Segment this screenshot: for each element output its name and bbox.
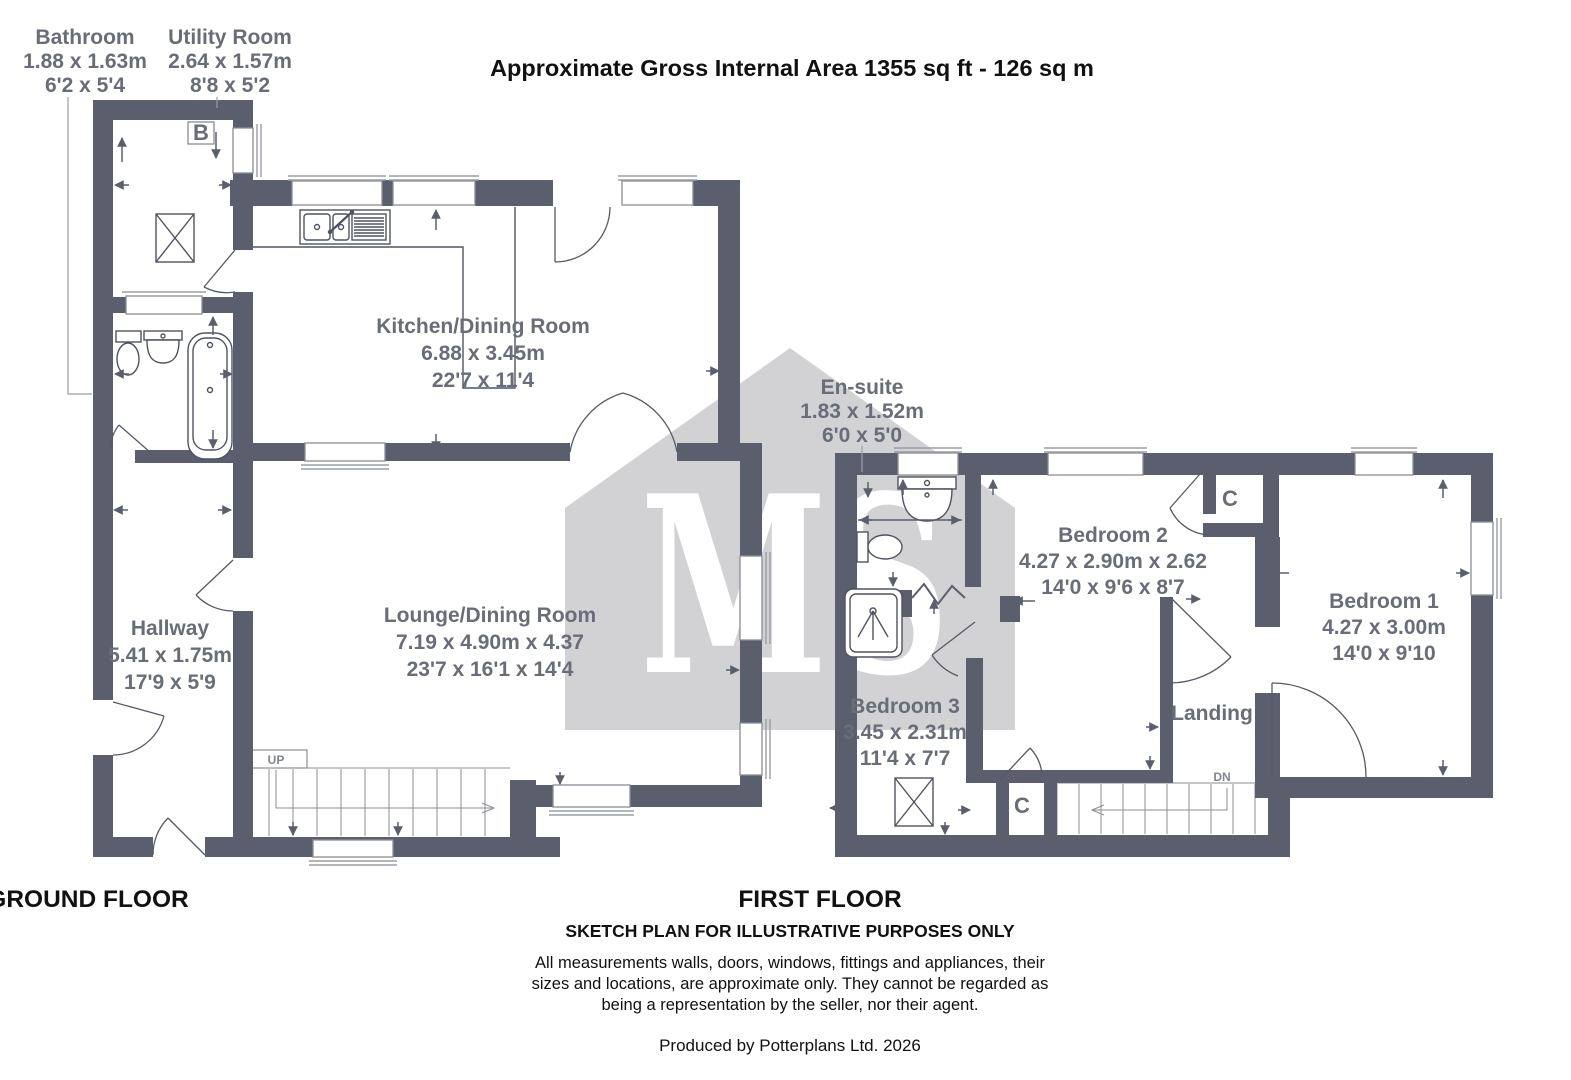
stairs-down-label: DN (1213, 770, 1230, 784)
room-label-bedroom1: Bedroom 1 4.27 x 3.00m 14'0 x 9'10 (1322, 590, 1446, 665)
landing-label: Landing (1171, 702, 1253, 725)
ground-floor-label: GROUND FLOOR (0, 886, 189, 913)
room-label-bedroom2: Bedroom 2 4.27 x 2.90m x 2.62 14'0 x 9'6… (1019, 524, 1207, 599)
shower-ensuite (845, 589, 902, 657)
stairs-first (1057, 783, 1268, 834)
sketch-note: SKETCH PLAN FOR ILLUSTRATIVE PURPOSES ON… (565, 921, 1015, 941)
room-label-bedroom3: Bedroom 3 3.45 x 2.31m 11'4 x 7'7 (843, 695, 967, 770)
toilet-bathroom (116, 331, 141, 375)
lounge-name: Lounge/Dining Room (384, 604, 596, 627)
hallway-imperial: 17'9 x 5'9 (124, 671, 216, 694)
ensuite-metric: 1.83 x 1.52m (800, 400, 924, 423)
lounge-metric: 7.19 x 4.90m x 4.37 (396, 631, 584, 654)
floor-plan: MS (0, 0, 1571, 1080)
disclaimer-line1: All measurements walls, doors, windows, … (535, 954, 1045, 972)
bathroom-imperial: 6'2 x 5'4 (45, 74, 125, 97)
page-title: Approximate Gross Internal Area 1355 sq … (490, 55, 1094, 81)
disclaimer-line2: sizes and locations, are approximate onl… (532, 975, 1049, 993)
bedroom3-imperial: 11'4 x 7'7 (860, 747, 951, 770)
kitchen-imperial: 22'7 x 11'4 (432, 369, 535, 392)
bathtub (188, 333, 232, 459)
stairs-ground (245, 750, 510, 836)
first-floor-label: FIRST FLOOR (738, 886, 902, 913)
bedroom1-name: Bedroom 1 (1329, 590, 1439, 613)
bedroom2-metric: 4.27 x 2.90m x 2.62 (1019, 550, 1207, 573)
room-label-kitchen: Kitchen/Dining Room 6.88 x 3.45m 22'7 x … (376, 315, 590, 392)
disclaimer-line3: being a representation by the seller, no… (602, 996, 979, 1014)
bedroom1-metric: 4.27 x 3.00m (1322, 616, 1446, 639)
utility-metric: 2.64 x 1.57m (168, 50, 292, 73)
watermark: MS (565, 348, 1015, 730)
bedroom2-imperial: 14'0 x 9'6 x 8'7 (1041, 576, 1184, 599)
room-label-hallway: Hallway 5.41 x 1.75m 17'9 x 5'9 (108, 617, 232, 694)
room-label-lounge: Lounge/Dining Room 7.19 x 4.90m x 4.37 2… (384, 604, 596, 681)
bedroom3-metric: 3.45 x 2.31m (843, 721, 967, 744)
bedroom1-imperial: 14'0 x 9'10 (1332, 642, 1435, 665)
ensuite-imperial: 6'0 x 5'0 (822, 424, 902, 447)
bedroom3-appliance (895, 778, 933, 826)
utility-imperial: 8'8 x 5'2 (190, 74, 270, 97)
produced-by: Produced by Potterplans Ltd. 2026 (659, 1036, 921, 1055)
hallway-name: Hallway (131, 617, 210, 640)
bedroom2-name: Bedroom 2 (1058, 524, 1168, 547)
utility-name: Utility Room (168, 26, 292, 49)
bathroom-name: Bathroom (35, 26, 134, 49)
sink-bathroom (144, 331, 182, 363)
room-label-utility: Utility Room 2.64 x 1.57m 8'8 x 5'2 (168, 26, 292, 97)
kitchen-name: Kitchen/Dining Room (376, 315, 590, 338)
boiler-marker: B (193, 120, 209, 145)
stairs-up-label: UP (268, 753, 285, 767)
cupboard-marker-top: C (1222, 486, 1238, 511)
kitchen-sink (300, 210, 390, 244)
ensuite-name: En-suite (821, 376, 904, 399)
hallway-metric: 5.41 x 1.75m (108, 644, 232, 667)
utility-appliance (156, 214, 194, 262)
kitchen-metric: 6.88 x 3.45m (421, 342, 545, 365)
bedroom3-name: Bedroom 3 (850, 695, 960, 718)
bathroom-metric: 1.88 x 1.63m (23, 50, 147, 73)
cupboard-marker-bottom: C (1014, 793, 1030, 818)
room-label-bathroom: Bathroom 1.88 x 1.63m 6'2 x 5'4 (23, 26, 147, 97)
lounge-imperial: 23'7 x 16'1 x 14'4 (407, 658, 574, 681)
